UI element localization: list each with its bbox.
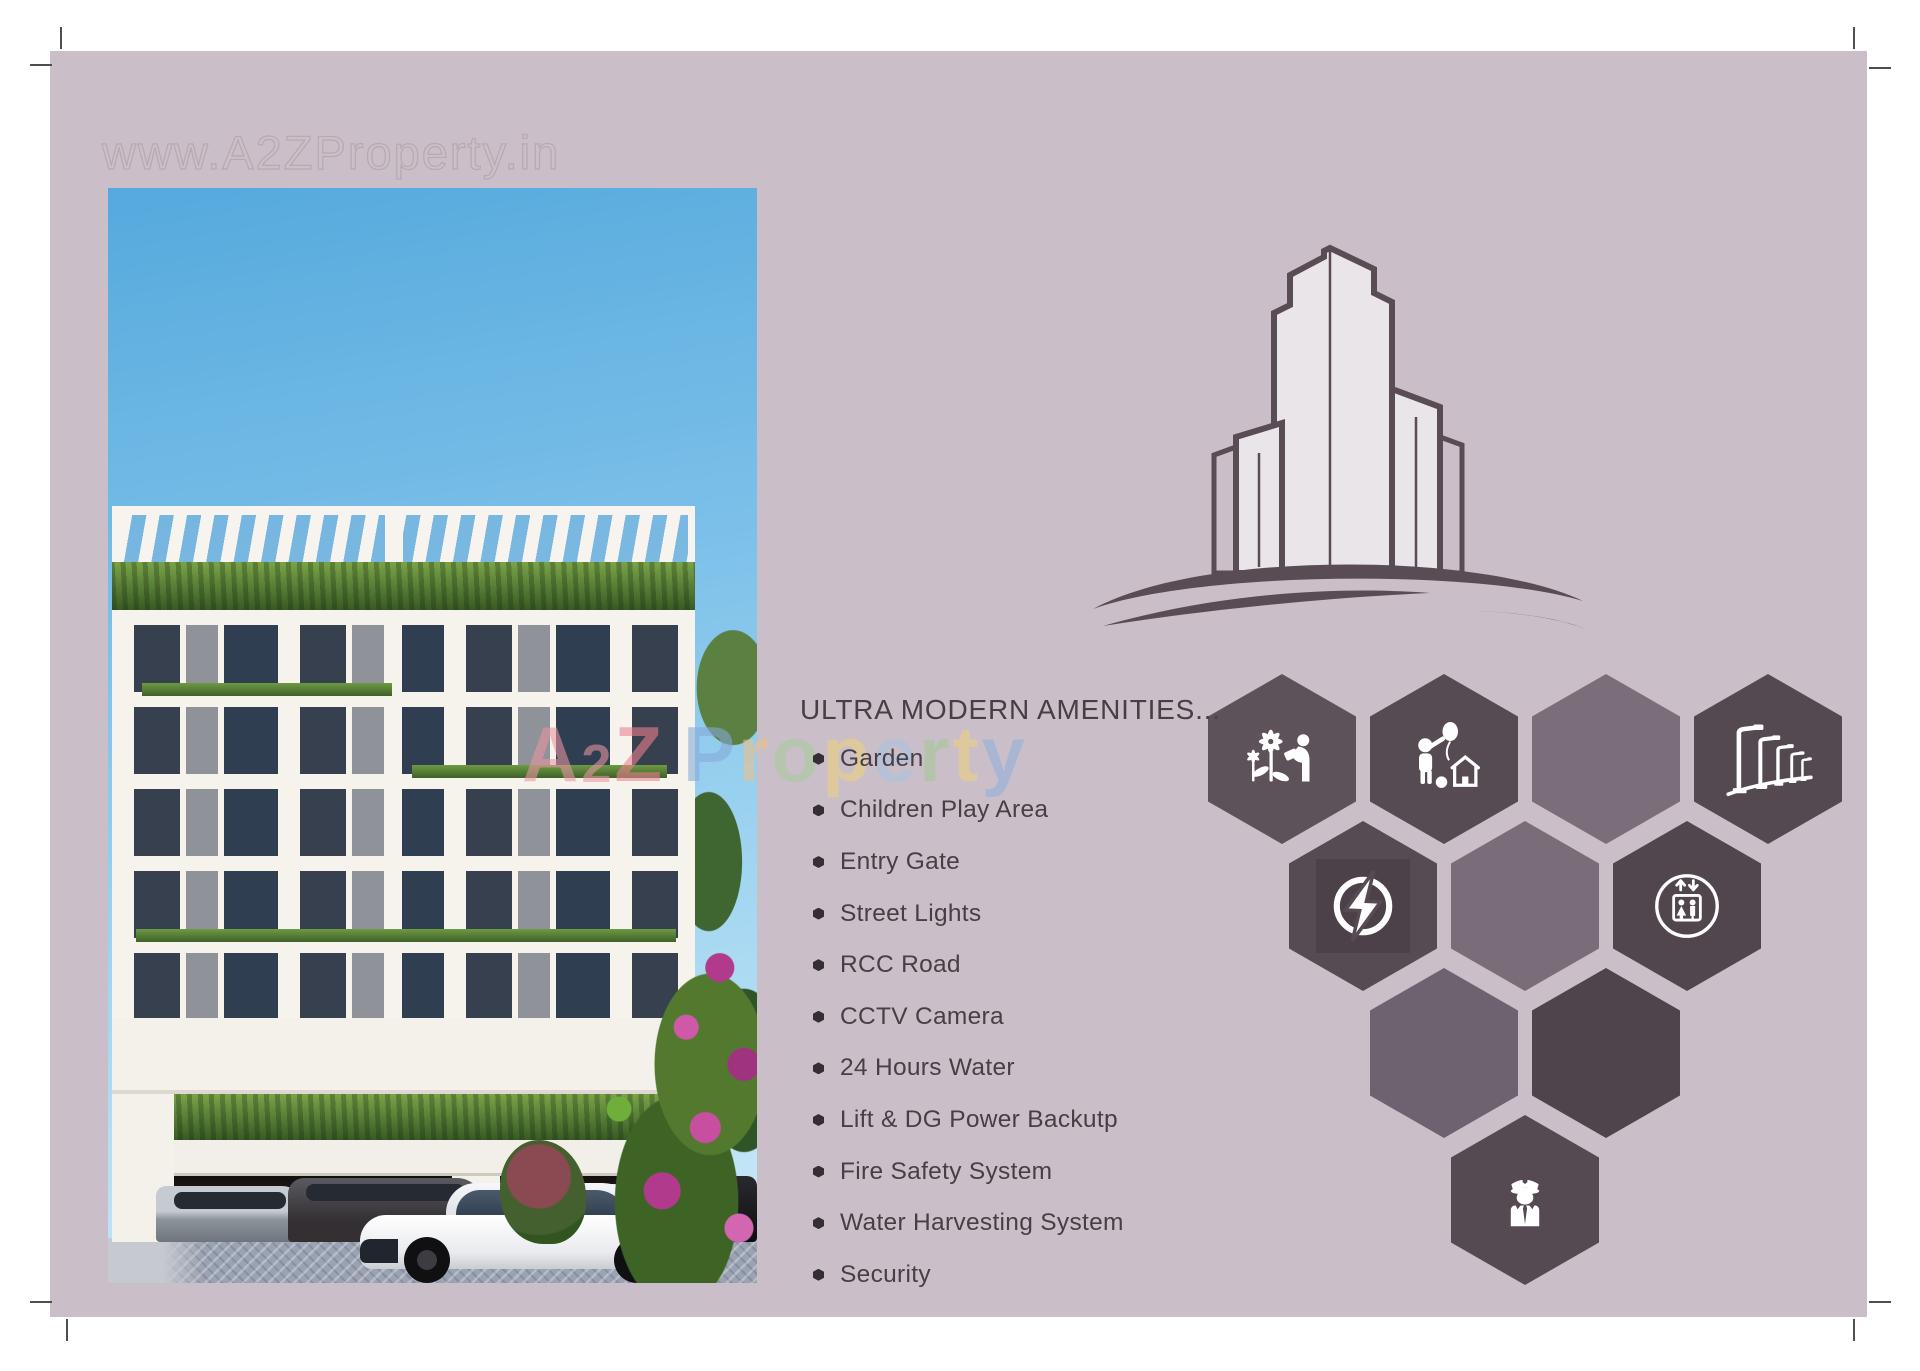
amenity-label: Garden [840,745,924,773]
amenity-item: Children Play Area [800,785,1124,837]
hex-security [1451,1115,1599,1285]
hex-empty-tile [1532,968,1680,1138]
watermark-letter: r [738,715,768,793]
brochure-canvas: www.A2ZProperty.in [50,51,1867,1317]
trim-mark [1869,67,1891,69]
bullet-icon [813,856,824,868]
amenity-item: Water Harvesting System [800,1197,1124,1249]
amenities-list: Garden Children Play Area Entry Gate Str… [800,733,1124,1301]
roof-hedge [112,562,695,610]
bullet-icon [813,753,824,765]
bullet-icon [813,1217,824,1229]
amenity-item: Security [800,1249,1124,1301]
bullet-icon [813,1011,824,1023]
trim-mark [30,64,52,66]
amenity-item: Street Lights [800,888,1124,940]
bullet-icon [813,1114,824,1126]
children-play-area-icon [1404,719,1484,799]
watermark-letter: 2 [581,737,611,793]
amenity-label: RCC Road [840,951,961,979]
trim-mark [66,1319,68,1341]
flower-bush [547,923,757,1283]
bullet-icon [813,908,824,920]
amenity-item: Entry Gate [800,836,1124,888]
amenity-label: CCTV Camera [840,1003,1004,1031]
amenity-label: Lift & DG Power Backutp [840,1106,1118,1134]
amenity-item: CCTV Camera [800,991,1124,1043]
hex-empty-tile [1451,821,1599,991]
hex-lift [1613,821,1761,991]
watermark-url: www.A2ZProperty.in [102,125,560,180]
trim-mark [1853,27,1855,49]
amenity-item: Lift & DG Power Backutp [800,1094,1124,1146]
bullet-icon [813,1269,824,1281]
bullet-icon [813,1062,824,1074]
amenity-item: RCC Road [800,939,1124,991]
amenity-label: Water Harvesting System [840,1209,1124,1237]
security-icon [1490,1165,1560,1235]
trim-mark [30,1301,52,1303]
parked-car-silver [156,1186,304,1242]
car-wheel [404,1237,450,1283]
amenity-label: Security [840,1261,931,1289]
amenity-item: Garden [800,733,1124,785]
car-grille [360,1239,398,1263]
amenity-label: Children Play Area [840,796,1048,824]
hex-street-lights [1694,674,1842,844]
amenity-item: Fire Safety System [800,1146,1124,1198]
bullet-icon [813,959,824,971]
bullet-icon [813,1166,824,1178]
amenity-label: Entry Gate [840,848,960,876]
trim-mark [1869,1301,1891,1303]
hex-garden [1208,674,1356,844]
amenity-label: Street Lights [840,900,981,928]
roof-pergola [112,506,695,562]
developer-logo-icon [1078,241,1598,641]
hex-empty-tile [1370,968,1518,1138]
lift-icon [1642,861,1732,951]
hex-empty-tile [1532,674,1680,844]
watermark-letter: A [522,715,578,793]
street-lights-icon [1719,710,1817,808]
bullet-icon [813,804,824,816]
garden-icon [1242,719,1322,799]
amenities-heading: ULTRA MODERN AMENITIES... [800,694,1221,726]
trim-mark [60,27,62,49]
amenity-item: 24 Hours Water [800,1043,1124,1095]
amenity-label: 24 Hours Water [840,1054,1015,1082]
watermark-letter: P [683,715,735,793]
brochure-page: www.A2ZProperty.in [0,0,1920,1371]
hex-children-play-area [1370,674,1518,844]
trim-mark [1853,1319,1855,1341]
balcony-planter [142,683,392,696]
power-backup-icon [1320,863,1406,949]
amenity-label: Fire Safety System [840,1158,1052,1186]
watermark-letter: Z [614,715,662,793]
hex-power-backup [1289,821,1437,991]
